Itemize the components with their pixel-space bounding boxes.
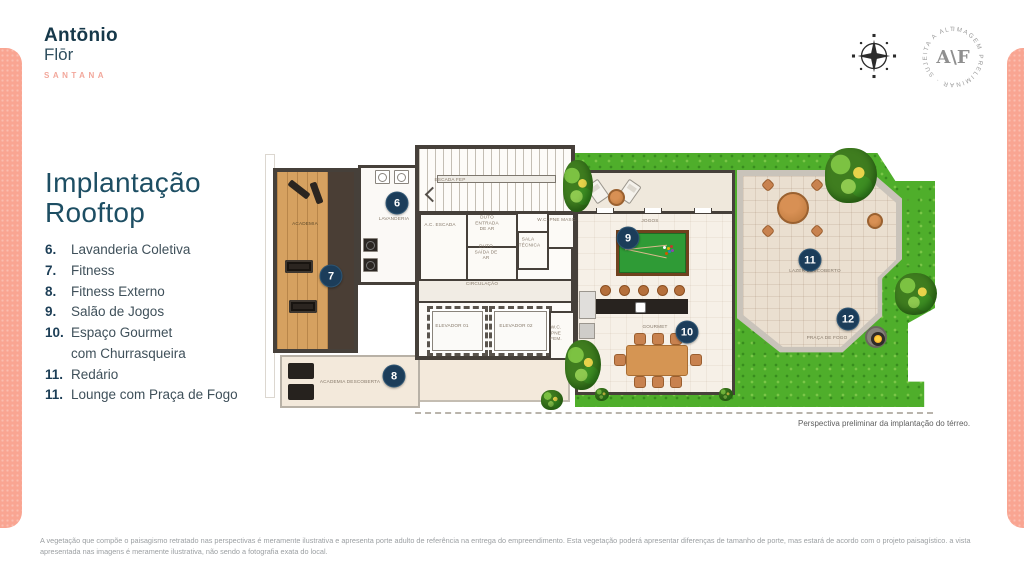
exercise-mat-icon: [288, 363, 314, 379]
marker-10: 10: [676, 321, 699, 344]
chair-icon: [652, 376, 664, 388]
legend-item-8: 8.Fitness Externo: [45, 285, 238, 299]
chair-icon: [670, 376, 682, 388]
dining-table: [626, 345, 688, 376]
legend-item-10: 10.Espaço Gourmetcom Churrasqueira: [45, 326, 238, 361]
bar-counter: [589, 299, 688, 314]
label-praca-de-fogo: PRAÇA DE FOGO: [807, 336, 848, 341]
brochure-page: Antōnio Flōr SANTANA IMAGEM PRELIMINAR ·…: [0, 0, 1024, 576]
brand-name-line2: Flōr: [44, 46, 118, 64]
kitchen-counter-icon: [579, 291, 596, 319]
window: [694, 208, 712, 213]
plan-caption: Perspectiva preliminar da implantação do…: [798, 419, 970, 428]
label-sala-tecnica: SALA TÉCNICA: [519, 237, 538, 249]
cue-stick-icon: [625, 249, 666, 259]
bar-stool-icon: [638, 285, 649, 296]
label-lavanderia: LAVANDERIA: [379, 217, 410, 222]
legend-item-6: 6.Lavanderia Coletiva: [45, 243, 238, 257]
bar-stool-icon: [657, 285, 668, 296]
room-elevador-02: [489, 306, 552, 356]
legend-item-7: 7.Fitness: [45, 264, 238, 278]
sink-icon: [635, 302, 646, 313]
bush-icon: [541, 390, 563, 410]
bar-stool-icon: [674, 285, 685, 296]
washing-machine-icon: [363, 238, 378, 252]
label-gourmet: GOURMET: [642, 325, 667, 330]
fire-pit-icon: [865, 326, 887, 348]
chair-icon: [652, 333, 664, 345]
preliminary-stamp: IMAGEM PRELIMINAR · SUJEITA A ALTERAÇÃO …: [916, 20, 990, 94]
treadmill-icon: [285, 260, 313, 273]
label-academia-descoberta: ACADEMIA DESCOBERTA: [320, 380, 380, 385]
label-elevador-02: ELEVADOR 02: [499, 324, 532, 329]
label-escada: ESCADA FEP: [435, 178, 466, 183]
chair-icon: [634, 376, 646, 388]
floor-plan: ACADEMIA LAVANDERIA ESCADA FEP A.C. ESCA…: [265, 140, 937, 420]
stair-direction-arrow: [425, 186, 441, 202]
page-title: Implantação Rooftop: [45, 168, 201, 228]
label-ac-escada: A.C. ESCADA: [424, 223, 455, 228]
bar-stool-icon: [619, 285, 630, 296]
brand-subtitle: SANTANA: [44, 71, 118, 80]
label-academia: ACADEMIA: [292, 222, 318, 227]
compass-icon: [851, 33, 897, 79]
side-table-icon: [867, 213, 883, 229]
marker-6: 6: [386, 192, 409, 215]
label-duto-saida: DUTO SAÍDA DE AR: [473, 244, 500, 262]
marker-9: 9: [617, 227, 640, 250]
legend: 6.Lavanderia Coletiva 7.Fitness 8.Fitnes…: [45, 243, 238, 409]
academia-dark-zone: [328, 172, 354, 349]
label-duto-entrada: DUTO ENTRADA DE AR: [474, 215, 501, 233]
brand-logo: Antōnio Flōr SANTANA: [44, 26, 118, 80]
treadmill-icon: [289, 300, 317, 313]
round-table-icon: [777, 192, 809, 224]
gym-equipment-icon: [309, 181, 323, 204]
chair-icon: [614, 354, 626, 366]
label-wc-fem: W.C. PNE FEM.: [547, 325, 564, 343]
window: [596, 208, 614, 213]
room-academia: [273, 168, 358, 353]
left-accent-tab: [0, 48, 22, 528]
washing-machine-icon: [394, 170, 409, 184]
chair-icon: [634, 333, 646, 345]
property-dash-line: [415, 412, 933, 414]
marker-11: 11: [799, 249, 822, 272]
marker-12: 12: [837, 308, 860, 331]
legal-disclaimer: A vegetação que compõe o paisagismo retr…: [40, 535, 988, 558]
marker-7: 7: [320, 265, 343, 288]
stamp-center-text: A\F: [935, 47, 970, 68]
window: [644, 208, 662, 213]
washing-machine-icon: [363, 258, 378, 272]
legend-item-11b: 11.Lounge com Praça de Fogo: [45, 388, 238, 402]
label-circulacao: CIRCULAÇÃO: [466, 282, 498, 287]
bar-stool-icon: [600, 285, 611, 296]
label-wc-masc: W.C. PNE MASC.: [537, 218, 576, 223]
label-elevador-01: ELEVADOR 01: [435, 324, 468, 329]
marker-8: 8: [383, 365, 406, 388]
brand-name-line1: Antōnio: [44, 26, 118, 46]
chair-icon: [690, 354, 702, 366]
label-jogos: JOGOS: [641, 219, 658, 224]
gym-equipment-icon: [287, 179, 310, 199]
room-elevador-01: [427, 306, 488, 356]
right-accent-tab: [1007, 48, 1024, 528]
exercise-mat-icon: [288, 384, 314, 400]
legend-item-9: 9.Salão de Jogos: [45, 305, 238, 319]
kitchen-counter-icon: [579, 323, 595, 339]
legend-item-11a: 11.Redário: [45, 368, 238, 382]
billiard-balls-icon: [663, 246, 666, 249]
deck-table-icon: [608, 189, 625, 206]
washing-machine-icon: [375, 170, 390, 184]
